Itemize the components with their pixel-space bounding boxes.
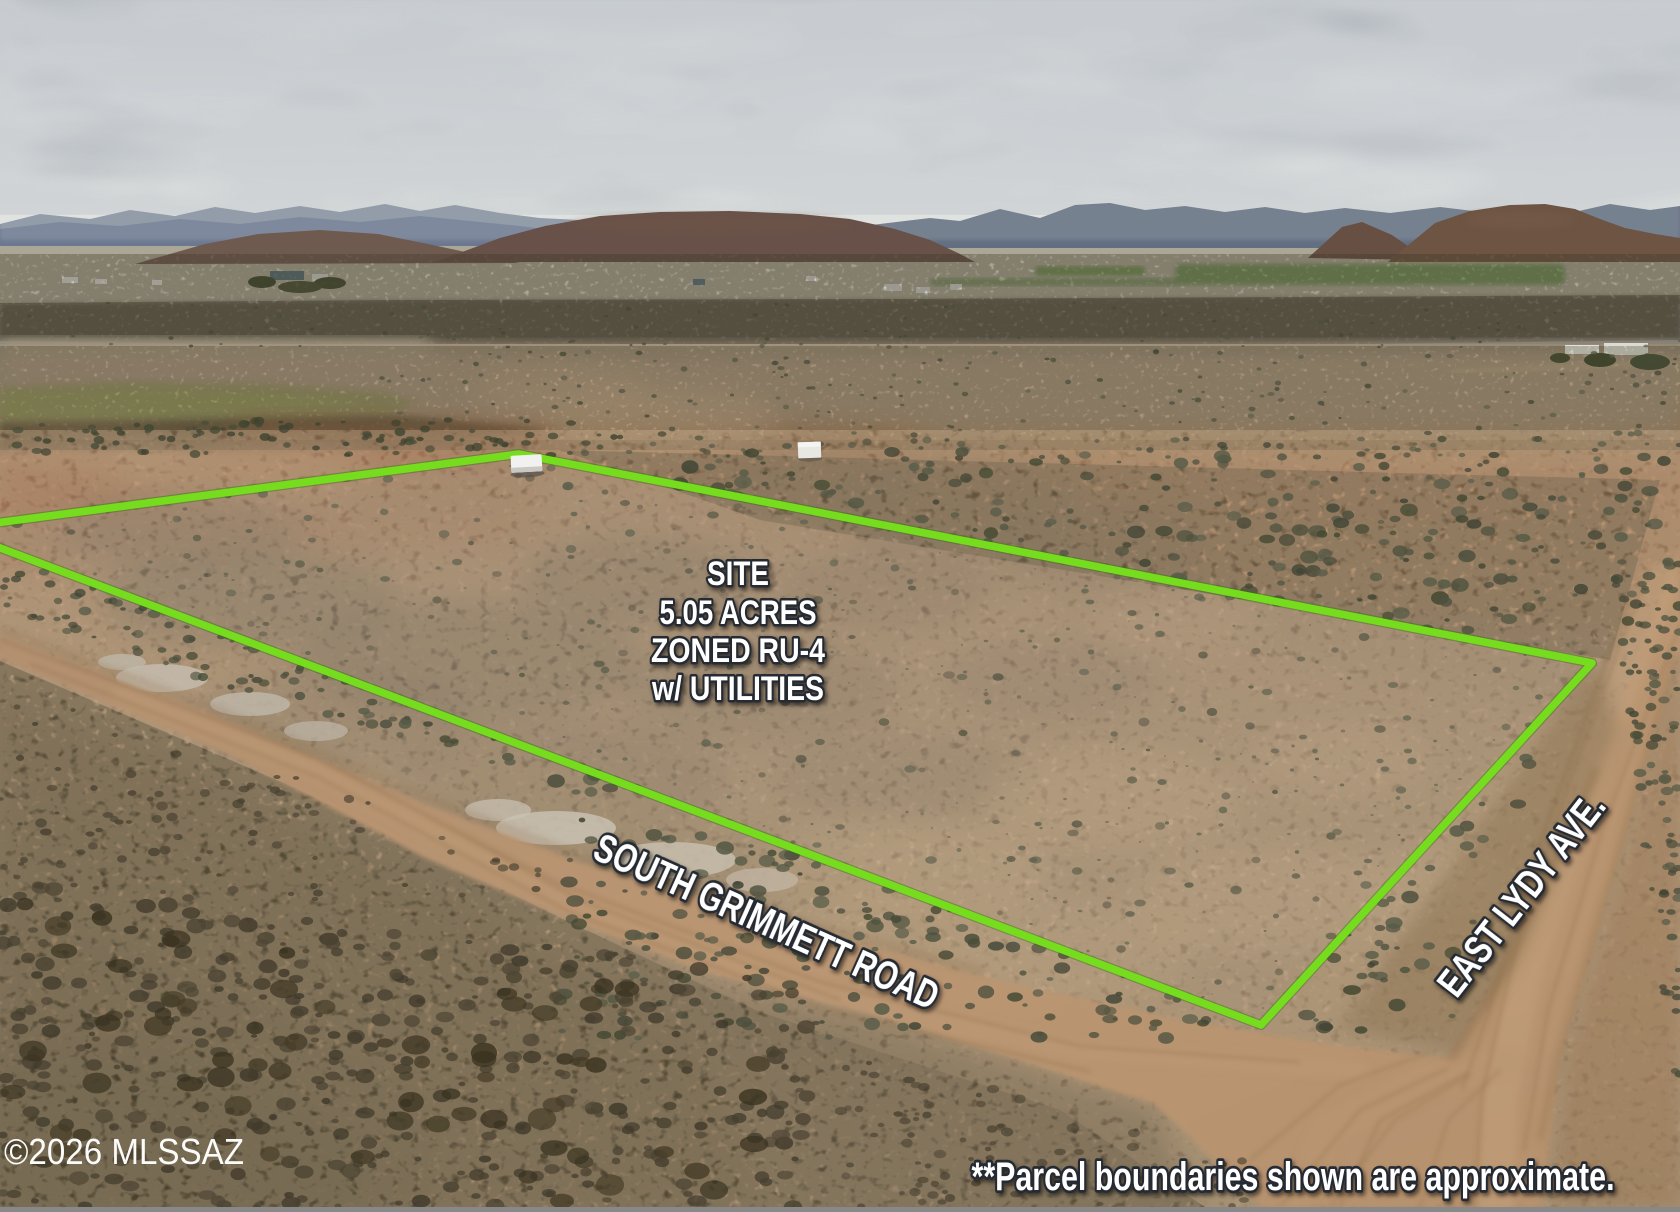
svg-text:w/ UTILITIES: w/ UTILITIES	[651, 670, 824, 708]
svg-text:5.05 ACRES: 5.05 ACRES	[660, 594, 817, 632]
svg-text:ZONED RU-4: ZONED RU-4	[651, 632, 825, 670]
svg-text:**Parcel boundaries shown are: **Parcel boundaries shown are approximat…	[972, 1155, 1615, 1199]
svg-text:SITE: SITE	[707, 555, 769, 593]
svg-text:©2026 MLSSAZ: ©2026 MLSSAZ	[4, 1131, 244, 1172]
